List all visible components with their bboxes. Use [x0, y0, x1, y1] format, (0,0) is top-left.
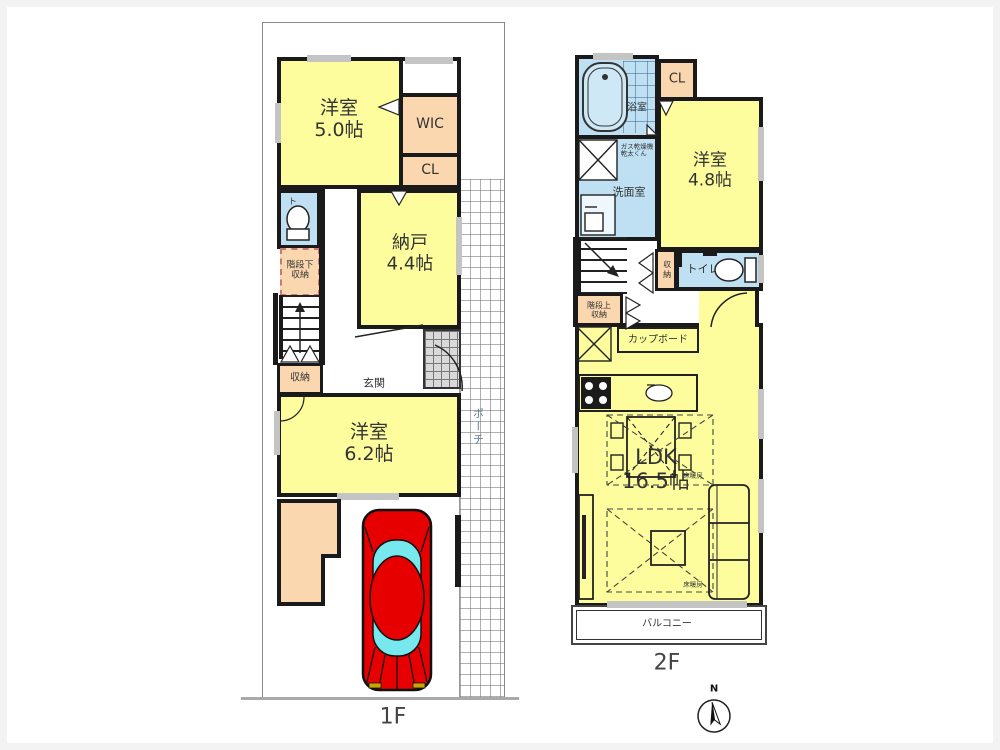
room-toilet-2f	[675, 249, 763, 291]
window	[593, 53, 633, 60]
stairs-2f	[577, 237, 627, 295]
sliding-door-balcony	[607, 601, 747, 608]
window	[758, 479, 764, 533]
room-ldk	[575, 323, 763, 607]
cupboard-box	[617, 327, 699, 353]
window	[758, 127, 764, 181]
floorplan-page: 洋室 5.0帖 WIC CL トイレ 階段下 収納 収納 納戸 4.4帖 玄関 …	[0, 0, 1000, 750]
bath-floor-tile	[623, 61, 655, 133]
window	[758, 389, 764, 439]
room-washroom	[575, 135, 659, 241]
window	[572, 427, 578, 473]
window	[758, 255, 764, 283]
compass-north-label: N	[710, 683, 718, 695]
balcony	[571, 605, 767, 645]
room-yoshitsu48	[657, 97, 763, 251]
floor-label-2f: 2F	[654, 650, 681, 675]
room-storage-2f	[655, 249, 677, 291]
room-ldk-upper	[699, 291, 759, 327]
room-over-stair-storage	[575, 293, 623, 327]
balcony-inner-rail	[576, 610, 762, 640]
wall	[573, 237, 578, 327]
floorplan-2f: 浴室 CL 洋室 4.8帖 ガス乾燥機 乾太くん 洗面室 収納 トイレ 階段上 …	[7, 7, 1000, 750]
